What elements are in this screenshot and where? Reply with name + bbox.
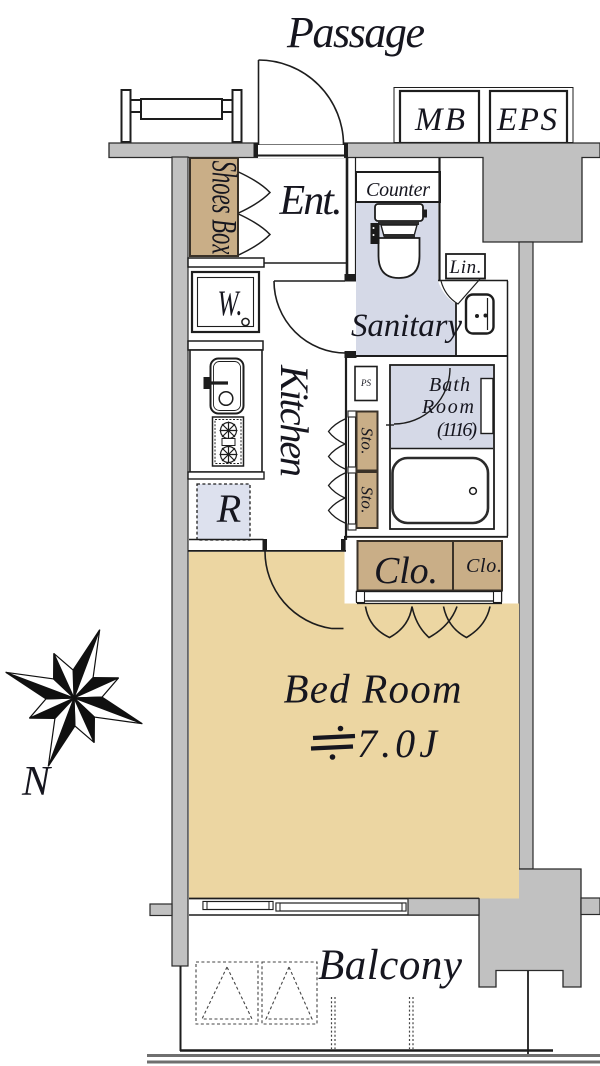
svg-text:Sanitary: Sanitary [351,308,462,344]
svg-text:Bed Room: Bed Room [284,666,462,712]
svg-text:W.: W. [218,283,243,324]
svg-text:Passage: Passage [286,8,425,57]
svg-text:Shoes Box: Shoes Box [204,161,245,255]
svg-text:Clo.: Clo. [374,550,438,592]
svg-text:Bath: Bath [429,374,470,396]
svg-text:Lin.: Lin. [449,257,482,278]
svg-text:7.0J: 7.0J [357,721,439,766]
svg-text:Sto.: Sto. [358,487,377,514]
svg-text:Balcony: Balcony [318,942,463,989]
svg-text:PS: PS [360,378,371,388]
svg-text:Room: Room [421,396,474,418]
svg-text:MB: MB [414,102,465,138]
svg-text:Counter: Counter [366,179,430,201]
svg-text:R: R [216,486,241,531]
svg-text:Clo.: Clo. [466,555,502,577]
svg-text:Ent.: Ent. [279,178,343,224]
svg-text:Kitchen: Kitchen [272,364,317,477]
svg-text:N: N [21,759,52,805]
svg-text:Sto.: Sto. [358,428,377,455]
svg-text:(1116): (1116) [437,419,477,441]
svg-text:EPS: EPS [496,102,557,138]
